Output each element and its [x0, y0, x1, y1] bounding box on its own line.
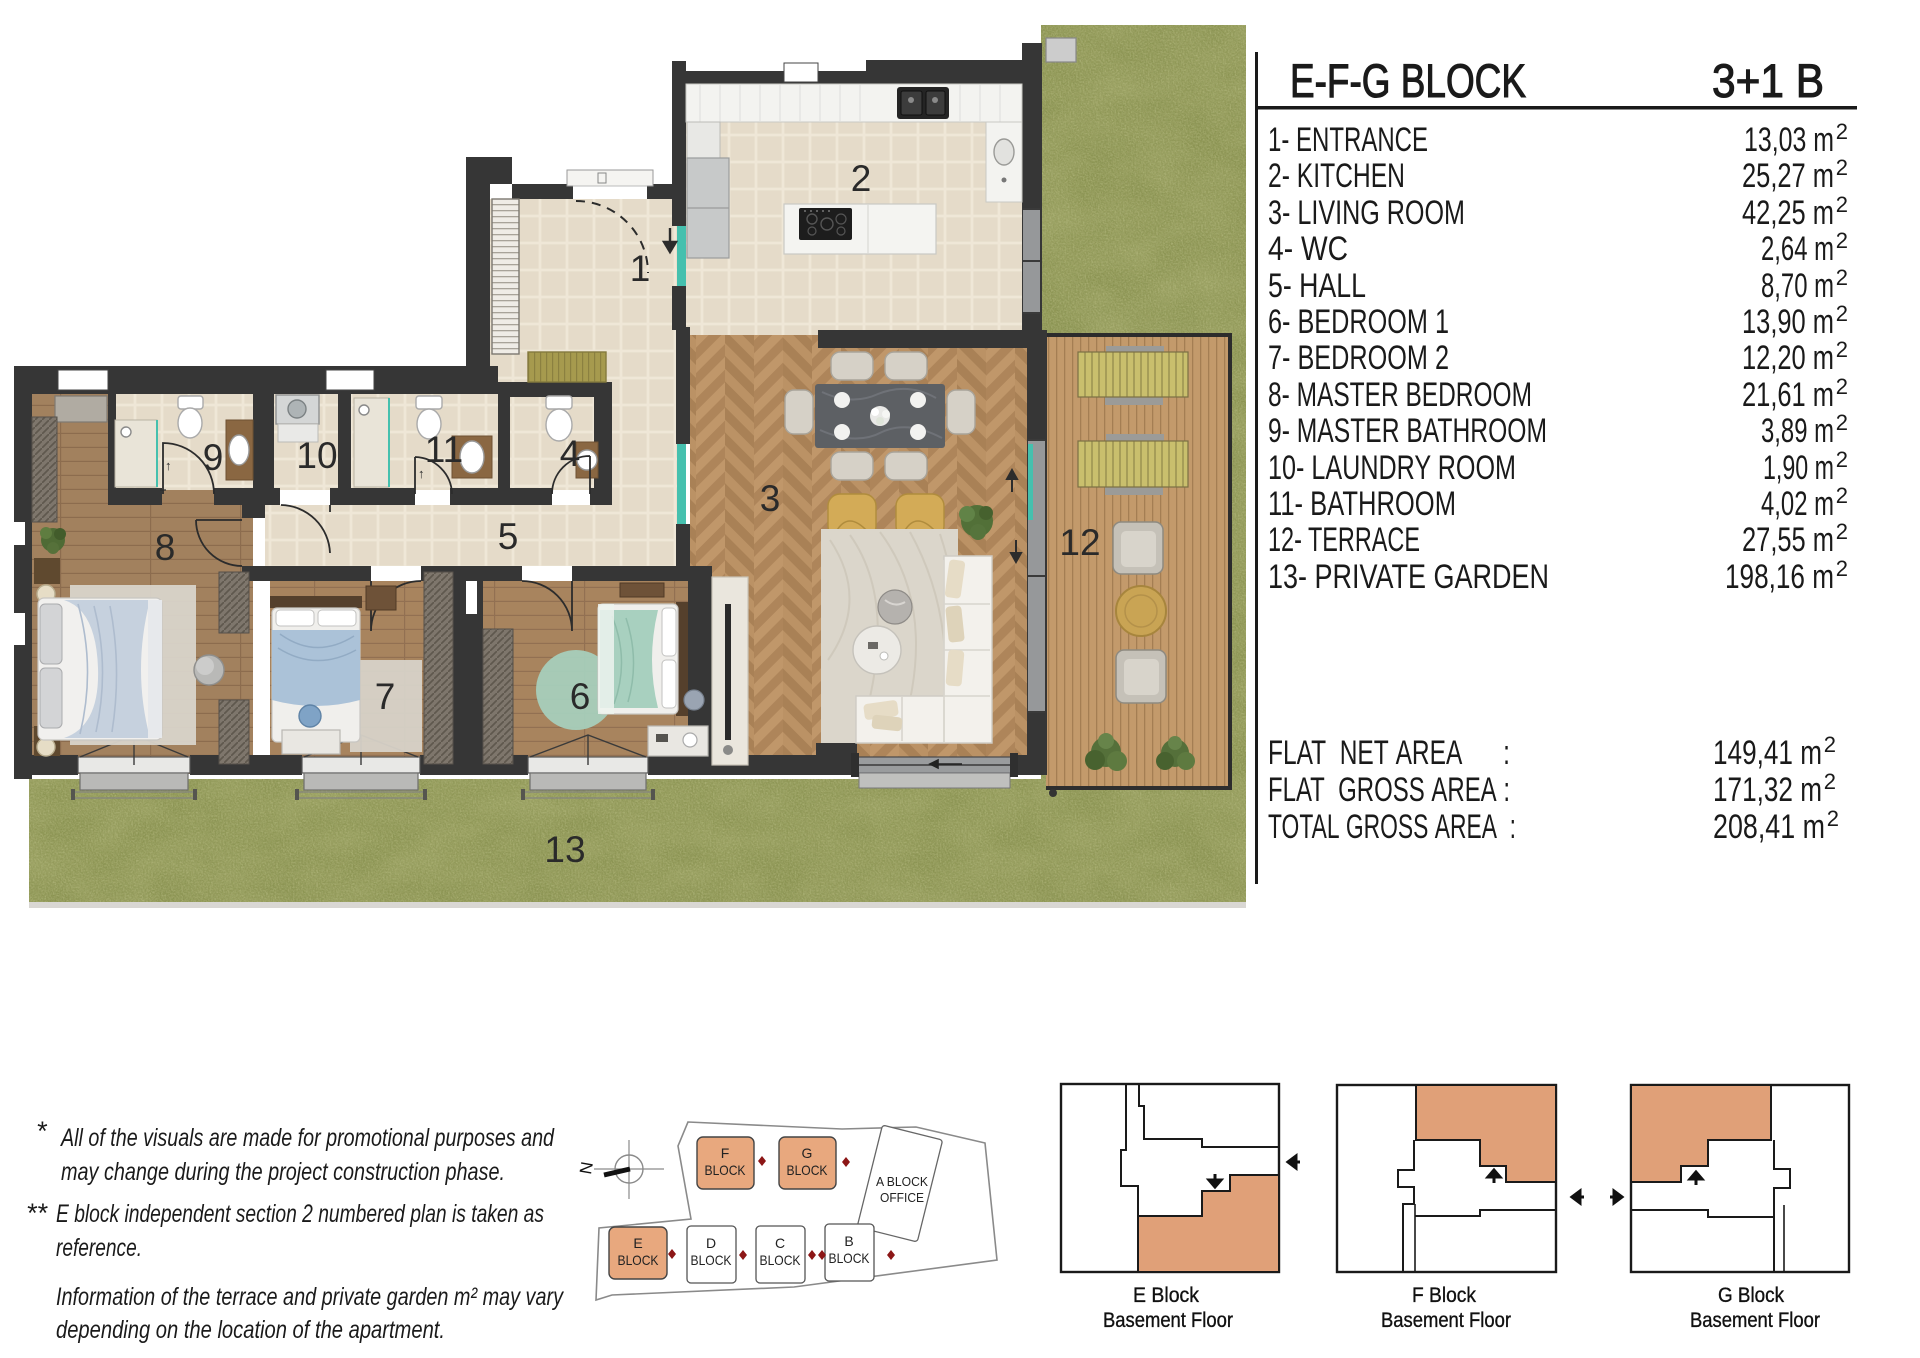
- svg-text:13- PRIVATE GARDEN: 13- PRIVATE GARDEN: [1268, 558, 1549, 596]
- svg-text:12,20 m: 12,20 m: [1742, 339, 1834, 377]
- svg-text:1,90 m: 1,90 m: [1763, 449, 1834, 487]
- svg-text:F: F: [721, 1145, 730, 1161]
- svg-text:4,02 m: 4,02 m: [1761, 485, 1834, 523]
- svg-text:BLOCK: BLOCK: [691, 1252, 733, 1268]
- svg-text:E block independent section 2: E block independent section 2 numbered p…: [56, 1200, 544, 1228]
- svg-text:7- BEDROOM 2: 7- BEDROOM 2: [1268, 339, 1449, 377]
- svg-text:reference.: reference.: [56, 1234, 142, 1262]
- svg-text:10: 10: [296, 435, 337, 476]
- svg-text:FLAT GROSS AREA :: FLAT GROSS AREA :: [1268, 771, 1510, 809]
- svg-text:2: 2: [1836, 374, 1848, 399]
- svg-text:2: 2: [1824, 732, 1836, 757]
- svg-text:C: C: [775, 1235, 785, 1251]
- svg-text:G Block: G Block: [1718, 1284, 1784, 1307]
- svg-text:2: 2: [1836, 192, 1848, 217]
- svg-text:D: D: [706, 1235, 716, 1251]
- svg-text:9- MASTER BATHROOM: 9- MASTER BATHROOM: [1268, 412, 1547, 450]
- svg-text:G: G: [802, 1145, 813, 1161]
- svg-text:13: 13: [544, 829, 585, 870]
- svg-text:13,90 m: 13,90 m: [1742, 303, 1834, 341]
- svg-text:3,89 m: 3,89 m: [1761, 412, 1834, 450]
- svg-text:42,25 m: 42,25 m: [1742, 194, 1834, 232]
- svg-text:3: 3: [760, 478, 781, 519]
- svg-text:171,32 m: 171,32 m: [1713, 771, 1822, 809]
- svg-text:9: 9: [203, 437, 224, 478]
- svg-text:149,41 m: 149,41 m: [1713, 734, 1822, 772]
- svg-text:6: 6: [570, 676, 591, 717]
- svg-text:Information of the terrace and: Information of the terrace and private g…: [56, 1283, 564, 1311]
- svg-text:25,27 m: 25,27 m: [1742, 157, 1834, 195]
- svg-text:2: 2: [1836, 483, 1848, 508]
- svg-text:OFFICE: OFFICE: [880, 1190, 924, 1205]
- svg-text:2,64 m: 2,64 m: [1761, 230, 1834, 268]
- svg-text:13,03 m: 13,03 m: [1744, 121, 1834, 159]
- svg-text:8- MASTER BEDROOM: 8- MASTER BEDROOM: [1268, 376, 1532, 414]
- svg-text:3+1 B: 3+1 B: [1712, 54, 1824, 107]
- svg-text:198,16 m: 198,16 m: [1725, 558, 1834, 596]
- svg-text:2: 2: [1836, 228, 1848, 253]
- svg-text:F Block: F Block: [1412, 1284, 1476, 1307]
- svg-text:2: 2: [1836, 447, 1848, 472]
- svg-text:2: 2: [1836, 337, 1848, 362]
- svg-text:Basement Floor: Basement Floor: [1103, 1309, 1233, 1332]
- svg-text:TOTAL GROSS AREA :: TOTAL GROSS AREA :: [1268, 808, 1516, 846]
- svg-text:2: 2: [1836, 556, 1848, 581]
- svg-text:All of the visuals are made fo: All of the visuals are made for promotio…: [59, 1124, 554, 1152]
- svg-text:5- HALL: 5- HALL: [1268, 267, 1366, 305]
- svg-text:12: 12: [1059, 522, 1100, 563]
- svg-text:BLOCK: BLOCK: [705, 1162, 747, 1178]
- svg-text:3- LIVING ROOM: 3- LIVING ROOM: [1268, 194, 1465, 232]
- svg-text:2: 2: [1836, 410, 1848, 435]
- svg-text:may change during the project: may change during the project constructi…: [61, 1158, 505, 1186]
- svg-text:BLOCK: BLOCK: [760, 1252, 802, 1268]
- svg-text:2: 2: [1836, 119, 1848, 144]
- svg-text:A BLOCK: A BLOCK: [876, 1174, 928, 1189]
- svg-text:E Block: E Block: [1133, 1284, 1199, 1307]
- svg-text:208,41 m: 208,41 m: [1713, 808, 1825, 846]
- svg-text:E: E: [633, 1235, 642, 1251]
- svg-text:Basement Floor: Basement Floor: [1690, 1309, 1820, 1332]
- svg-text:*: *: [36, 1116, 48, 1146]
- svg-text:Basement Floor: Basement Floor: [1381, 1309, 1511, 1332]
- svg-text:6- BEDROOM 1: 6- BEDROOM 1: [1268, 303, 1449, 341]
- svg-text:1: 1: [630, 248, 651, 289]
- svg-text:2: 2: [1836, 265, 1848, 290]
- svg-text:BLOCK: BLOCK: [829, 1250, 871, 1266]
- svg-text:B: B: [844, 1233, 853, 1249]
- svg-text:21,61 m: 21,61 m: [1742, 376, 1834, 414]
- svg-text:7: 7: [375, 676, 396, 717]
- svg-text:27,55 m: 27,55 m: [1742, 521, 1834, 559]
- svg-text:4- WC: 4- WC: [1268, 230, 1348, 268]
- svg-text:2: 2: [1824, 769, 1836, 794]
- svg-text:FLAT NET AREA :: FLAT NET AREA :: [1268, 734, 1510, 772]
- svg-text:BLOCK: BLOCK: [618, 1252, 660, 1268]
- svg-text:depending on the location of t: depending on the location of the apartme…: [56, 1316, 445, 1344]
- svg-text:2: 2: [1836, 519, 1848, 544]
- svg-text:↑: ↑: [165, 458, 172, 473]
- svg-text:2: 2: [1836, 155, 1848, 180]
- svg-text:5: 5: [498, 516, 519, 557]
- svg-text:E-F-G BLOCK: E-F-G BLOCK: [1290, 54, 1526, 107]
- svg-text:8,70 m: 8,70 m: [1761, 267, 1834, 305]
- svg-text:2: 2: [1827, 806, 1839, 831]
- svg-text:BLOCK: BLOCK: [787, 1162, 829, 1178]
- svg-text:8: 8: [155, 527, 176, 568]
- svg-text:10- LAUNDRY ROOM: 10- LAUNDRY ROOM: [1268, 449, 1516, 487]
- svg-text:11: 11: [425, 429, 463, 470]
- svg-text:**: **: [26, 1198, 49, 1228]
- svg-text:4: 4: [560, 433, 581, 474]
- svg-text:2: 2: [851, 158, 872, 199]
- svg-text:2- KITCHEN: 2- KITCHEN: [1268, 157, 1405, 195]
- svg-text:1- ENTRANCE: 1- ENTRANCE: [1268, 121, 1428, 159]
- svg-text:↑: ↑: [418, 466, 425, 481]
- svg-text:12- TERRACE: 12- TERRACE: [1268, 521, 1420, 559]
- svg-text:2: 2: [1836, 301, 1848, 326]
- svg-text:11- BATHROOM: 11- BATHROOM: [1268, 485, 1456, 523]
